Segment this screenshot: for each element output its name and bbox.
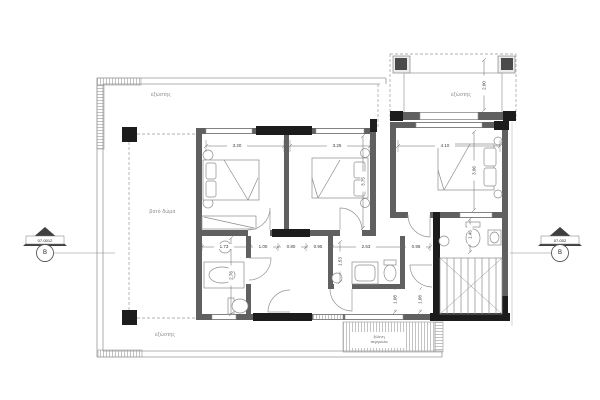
terrace-bottom-label: εξώστης [140,332,190,338]
dim-bed1-width: 3.20 [227,143,247,148]
roof-deck-label: βατό δώμα [135,209,190,215]
section-marker-left-code: 07-0012 [27,237,63,244]
dim-hall-1: 1.00 [253,244,273,249]
dim-offset-left: 0.95 [308,244,328,249]
dim-entry-right: 1.08 [418,290,423,310]
dim-bed2-depth: 3.75 [361,172,366,192]
section-marker-left-letter: Β [37,249,53,257]
dim-bath2-depth: 1.53 [338,252,343,272]
pergola-label: ξύλινη πέργκολα [352,332,406,348]
balcony [390,54,516,121]
section-marker-right [510,227,582,262]
terrace-top-label: εξώστης [136,92,186,98]
dim-entry-left: 1.08 [393,290,398,310]
dim-bed3-depth: 3.06 [472,161,477,181]
floor-plan-linework [0,0,600,400]
bathroom-1-fixtures [204,241,248,314]
dim-offset-right: 0.95 [406,244,426,249]
bed-1 [202,150,259,229]
floor-plan: εξώστης εξώστης βατό δώμα εξώστης ξύλινη… [0,0,600,400]
dim-bath1-width: 1.73 [214,244,234,249]
roof-overhang-dashed [129,84,378,318]
dim-bath3-depth: 1.45 [468,225,473,245]
dim-balcony-depth: 2.00 [482,76,487,96]
section-marker-right-letter: Β [552,249,568,257]
section-marker-right-code: 07-002 [542,237,578,244]
dim-bath2-width: 2.53 [356,244,376,249]
pergola-label-line2: πέργκολα [352,339,406,344]
dim-hall-2: 0.80 [281,244,301,249]
pergola-posts [122,127,137,325]
balcony-label: εξώστης [436,92,486,98]
dim-bed3-width: 4.10 [435,143,455,148]
staircase [440,258,502,314]
dim-bath1-depth: 2.76 [229,266,234,286]
dim-bed2-width: 3.25 [327,143,347,148]
window-mullions [313,315,343,320]
